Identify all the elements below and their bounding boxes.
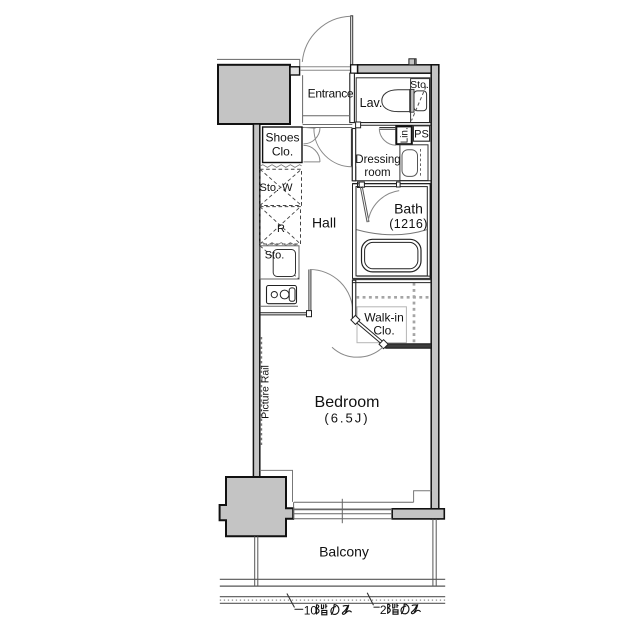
svg-text:Lav.: Lav. — [360, 96, 383, 110]
svg-text:Sto.: Sto. — [410, 79, 429, 91]
svg-text:Dressing: Dressing — [355, 154, 400, 166]
svg-text:R: R — [277, 223, 285, 235]
svg-text:room: room — [364, 167, 390, 179]
svg-text:Lin.: Lin. — [400, 127, 411, 143]
svg-text:Clo.: Clo. — [272, 145, 293, 159]
svg-text:Picture Rail: Picture Rail — [260, 365, 272, 419]
svg-text:Entrance: Entrance — [308, 87, 354, 101]
svg-text:Clo.: Clo. — [373, 324, 394, 338]
svg-text:Bath: Bath — [394, 201, 423, 217]
svg-text:Balcony: Balcony — [319, 544, 369, 560]
svg-text:Hall: Hall — [312, 215, 336, 231]
svg-text:Sto.: Sto. — [265, 249, 285, 261]
svg-text:Shoes: Shoes — [265, 131, 299, 145]
svg-text:(6.5J): (6.5J) — [324, 411, 369, 426]
svg-text:(1216): (1216) — [389, 217, 428, 231]
svg-text:Bedroom: Bedroom — [315, 394, 380, 411]
svg-text:Sto. W: Sto. W — [259, 182, 293, 194]
svg-text:2: 2 — [380, 603, 387, 617]
svg-text:10: 10 — [304, 604, 318, 618]
svg-text:PS: PS — [414, 128, 429, 140]
